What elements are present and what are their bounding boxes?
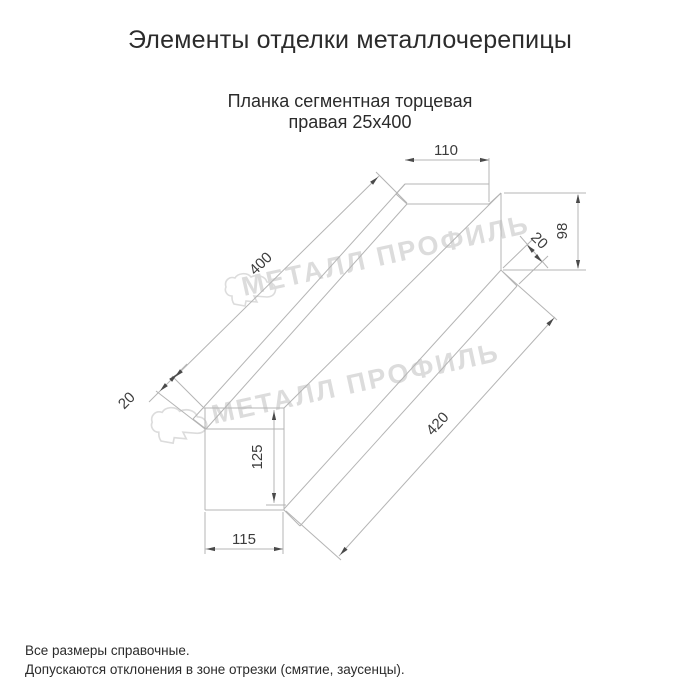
watermark-text-upper: МЕТАЛЛ ПРОФИЛЬ [239, 209, 533, 302]
technical-drawing-page: Элементы отделки металлочерепицы Планка … [0, 0, 700, 700]
footnotes: Все размеры справочные. Допускаются откл… [25, 641, 405, 679]
dim-bottom-width: 115 [232, 531, 256, 548]
dim-left-fold: 20 [115, 389, 139, 413]
dim-bottom-edge-length: 420 [423, 409, 452, 439]
footnote-line1: Все размеры справочные. [25, 641, 405, 660]
dimension-labels: 110 98 20 400 420 20 125 115 [115, 142, 571, 548]
dim-top-width: 110 [434, 142, 458, 159]
footnote-line2: Допускаются отклонения в зоне отрезки (с… [25, 660, 405, 679]
dim-right-height: 98 [554, 223, 571, 240]
dim-left-height: 125 [249, 444, 266, 469]
drawing-canvas: МЕТАЛЛ ПРОФИЛЬ МЕТАЛЛ ПРОФИЛЬ [0, 0, 700, 700]
